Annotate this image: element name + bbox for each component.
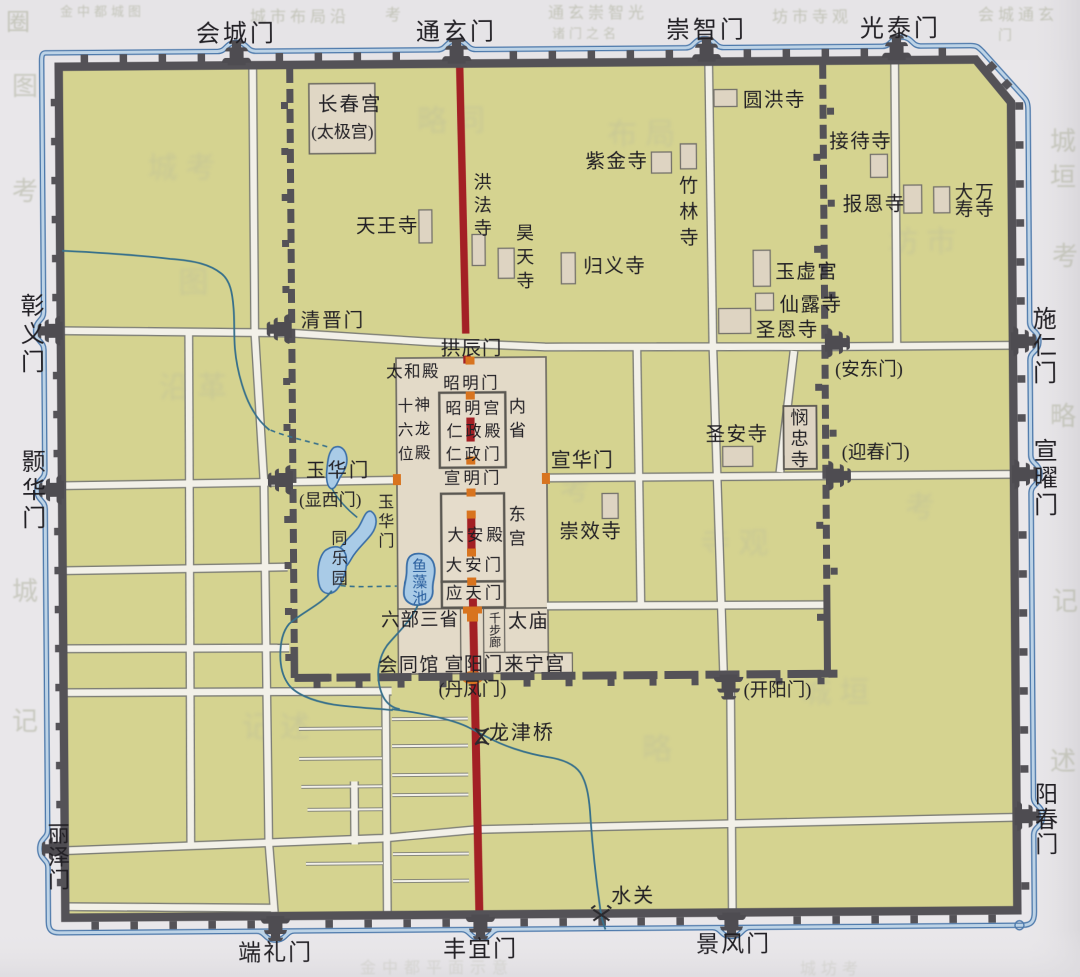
svg-text:寿寺: 寿寺 xyxy=(955,199,996,220)
svg-text:记: 记 xyxy=(12,707,38,736)
svg-text:太和殿: 太和殿 xyxy=(386,362,440,381)
svg-text:(显西门): (显西门) xyxy=(299,490,361,509)
svg-text:寺观: 寺观 xyxy=(700,527,776,561)
svg-text:紫金寺: 紫金寺 xyxy=(585,150,648,172)
svg-text:应天门: 应天门 xyxy=(446,583,505,602)
svg-text:昊天寺: 昊天寺 xyxy=(516,223,535,291)
svg-text:彰义门: 彰义门 xyxy=(20,293,45,376)
svg-text:城垣: 城垣 xyxy=(801,676,877,710)
svg-text:龙津桥: 龙津桥 xyxy=(489,721,555,745)
svg-text:通玄崇智光: 通玄崇智光 xyxy=(548,4,648,22)
svg-text:垣: 垣 xyxy=(1050,163,1076,192)
svg-text:记: 记 xyxy=(1052,587,1078,616)
svg-text:天王寺: 天王寺 xyxy=(356,215,419,237)
svg-text:通玄门: 通玄门 xyxy=(416,18,497,46)
svg-text:城坊考: 城坊考 xyxy=(800,960,863,977)
svg-text:崇智门: 崇智门 xyxy=(666,16,747,44)
svg-text:来宁宫: 来宁宫 xyxy=(504,653,566,675)
svg-text:会城门: 会城门 xyxy=(196,20,277,48)
svg-text:归义寺: 归义寺 xyxy=(583,255,646,277)
svg-text:悯忠寺: 悯忠寺 xyxy=(790,408,808,470)
svg-text:崇效寺: 崇效寺 xyxy=(559,520,622,542)
svg-text:报恩寺: 报恩寺 xyxy=(843,193,906,215)
svg-text:圈: 圈 xyxy=(6,10,34,36)
svg-text:圣安寺: 圣安寺 xyxy=(706,423,769,445)
svg-text:宣阳门: 宣阳门 xyxy=(444,653,503,675)
svg-text:端礼门: 端礼门 xyxy=(238,940,313,966)
svg-text:考: 考 xyxy=(385,6,405,24)
svg-text:仁政殿: 仁政殿 xyxy=(446,422,503,440)
svg-text:圣恩寺: 圣恩寺 xyxy=(756,319,819,341)
svg-text:述: 述 xyxy=(1050,747,1076,776)
svg-text:光泰门: 光泰门 xyxy=(860,15,941,43)
svg-text:考: 考 xyxy=(12,177,38,206)
svg-text:仁政门: 仁政门 xyxy=(446,445,503,463)
svg-text:洪法寺: 洪法寺 xyxy=(474,172,493,238)
svg-text:坊市寺观: 坊市寺观 xyxy=(772,8,852,26)
svg-text:大安门: 大安门 xyxy=(446,555,505,574)
svg-text:(太极宫): (太极宫) xyxy=(311,122,373,141)
svg-text:昭明宫: 昭明宫 xyxy=(445,399,502,417)
svg-text:同乐园: 同乐园 xyxy=(331,531,347,588)
svg-text:(开阳门): (开阳门) xyxy=(744,680,812,702)
svg-text:略同: 略同 xyxy=(417,104,493,138)
svg-text:城: 城 xyxy=(1050,127,1076,156)
svg-text:鱼藻池: 鱼藻池 xyxy=(412,557,427,607)
svg-text:玉虚宫: 玉虚宫 xyxy=(775,261,838,283)
svg-text:长春宫: 长春宫 xyxy=(318,93,383,116)
svg-text:昭明门: 昭明门 xyxy=(443,373,500,392)
svg-text:会城通玄: 会城通玄 xyxy=(978,6,1058,24)
svg-text:门: 门 xyxy=(998,28,1016,44)
svg-text:略: 略 xyxy=(642,733,680,766)
svg-text:(安东门): (安东门) xyxy=(835,359,903,381)
svg-text:颢华门: 颢华门 xyxy=(22,450,47,532)
svg-text:城: 城 xyxy=(12,577,38,606)
svg-text:圆洪寺: 圆洪寺 xyxy=(743,89,806,111)
svg-text:太庙: 太庙 xyxy=(508,610,549,632)
svg-text:千步廊: 千步廊 xyxy=(489,611,501,649)
svg-text:宣华门: 宣华门 xyxy=(551,448,614,471)
svg-text:施仁门: 施仁门 xyxy=(1033,306,1058,387)
svg-text:六部三省: 六部三省 xyxy=(381,610,459,632)
svg-text:竹林寺: 竹林寺 xyxy=(679,175,699,249)
svg-text:考: 考 xyxy=(905,491,943,524)
svg-text:接待寺: 接待寺 xyxy=(829,130,892,152)
svg-text:(迎春门): (迎春门) xyxy=(842,442,910,464)
svg-text:阳春门: 阳春门 xyxy=(1035,782,1059,857)
svg-text:城考: 城考 xyxy=(147,151,223,185)
svg-text:宣明门: 宣明门 xyxy=(444,468,503,487)
svg-text:丽泽门: 丽泽门 xyxy=(48,822,71,893)
svg-text:仙露寺: 仙露寺 xyxy=(779,294,842,316)
svg-text:大安殿: 大安殿 xyxy=(447,525,506,544)
svg-text:水关: 水关 xyxy=(611,884,655,907)
svg-text:(丹凤门): (丹凤门) xyxy=(439,679,507,701)
svg-text:图: 图 xyxy=(12,72,38,101)
svg-text:考: 考 xyxy=(1052,242,1078,271)
svg-text:清晋门: 清晋门 xyxy=(301,309,366,332)
svg-text:玉华门: 玉华门 xyxy=(306,459,371,482)
svg-text:十六位: 十六位 xyxy=(398,397,414,463)
svg-text:略: 略 xyxy=(1050,402,1076,431)
svg-text:景风门: 景风门 xyxy=(696,931,771,957)
svg-text:图: 图 xyxy=(178,267,216,300)
svg-text:宣曜门: 宣曜门 xyxy=(1034,438,1059,519)
svg-text:金中都城图: 金中都城图 xyxy=(60,4,145,19)
svg-text:诸门之名: 诸门之名 xyxy=(552,26,620,41)
svg-text:布局: 布局 xyxy=(607,118,683,152)
svg-text:会同馆: 会同馆 xyxy=(378,654,440,676)
svg-text:沿革: 沿革 xyxy=(159,371,235,405)
svg-text:丰宜门: 丰宜门 xyxy=(443,936,518,962)
svg-text:拱辰门: 拱辰门 xyxy=(441,337,503,359)
svg-text:神龙殿: 神龙殿 xyxy=(415,396,431,462)
svg-text:玉华门: 玉华门 xyxy=(378,494,394,550)
